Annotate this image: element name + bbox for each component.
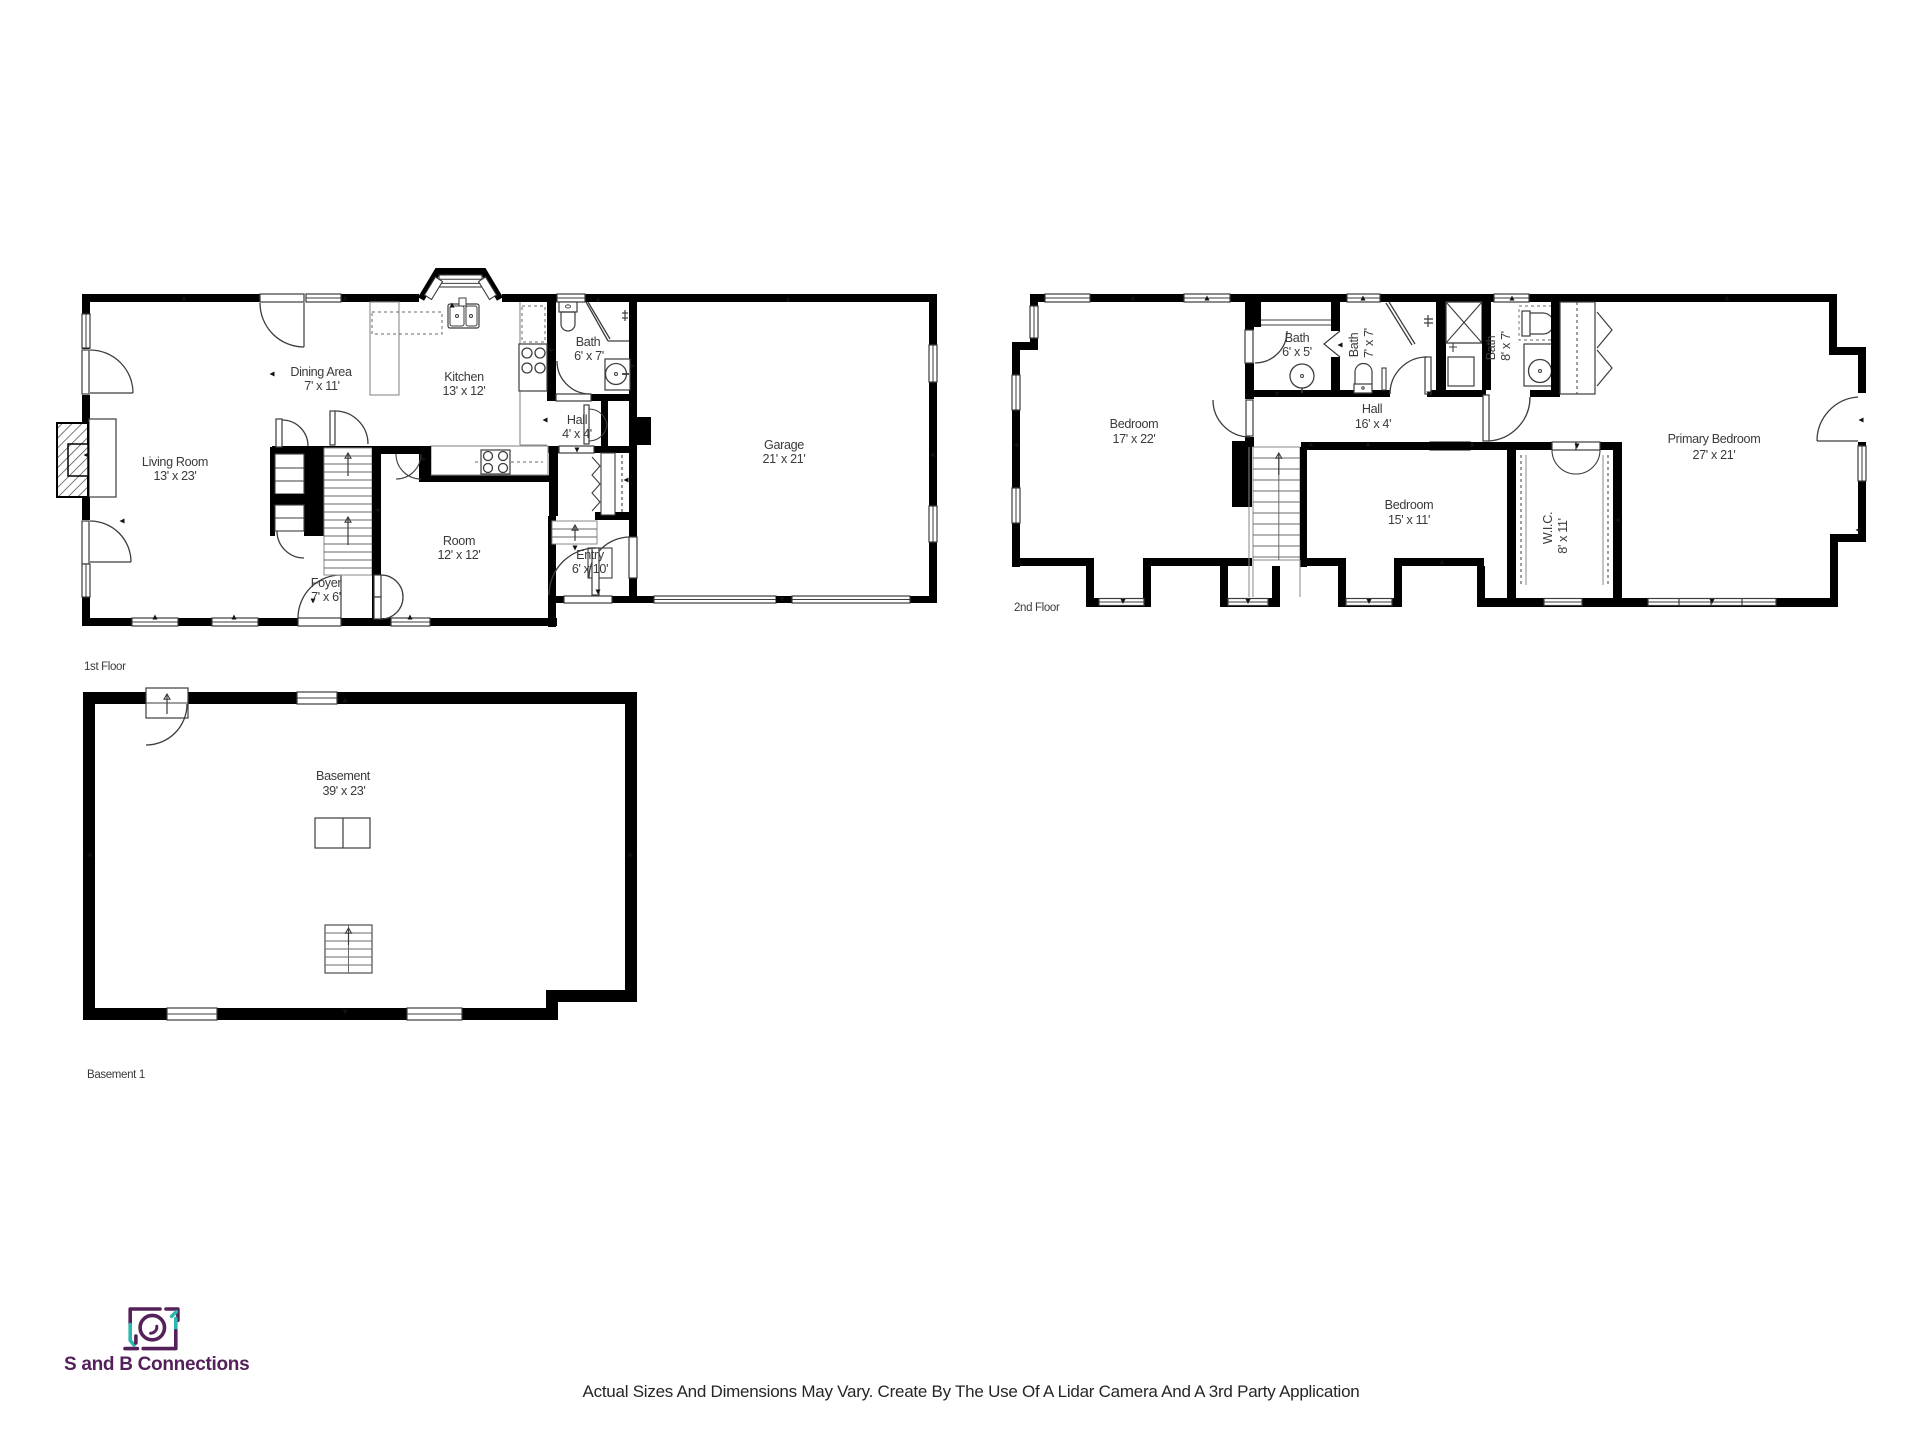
svg-text:2nd Floor: 2nd Floor (1014, 602, 1060, 614)
svg-text:Bath: Bath (1285, 331, 1310, 345)
svg-text:Primary Bedroom: Primary Bedroom (1668, 432, 1761, 446)
svg-text:Room: Room (443, 534, 475, 548)
svg-text:Basement 1: Basement 1 (87, 1069, 145, 1081)
svg-text:Kitchen: Kitchen (444, 370, 484, 384)
svg-text:7' x 11': 7' x 11' (304, 379, 339, 393)
svg-text:16' x 4': 16' x 4' (1355, 417, 1391, 431)
svg-text:Bath: Bath (576, 335, 601, 349)
svg-text:27' x 21': 27' x 21' (1693, 448, 1736, 462)
svg-text:Basement: Basement (316, 769, 371, 783)
svg-text:Hall: Hall (567, 413, 587, 427)
svg-text:Garage: Garage (764, 438, 804, 452)
svg-text:7' x 6': 7' x 6' (311, 590, 341, 604)
svg-text:6' x 10': 6' x 10' (572, 562, 608, 576)
svg-text:8' x 11': 8' x 11' (1556, 518, 1570, 553)
svg-text:13' x 23': 13' x 23' (154, 469, 197, 483)
svg-text:W.I.C.: W.I.C. (1541, 512, 1555, 544)
svg-text:15' x 11': 15' x 11' (1388, 513, 1430, 527)
svg-text:1st Floor: 1st Floor (84, 661, 126, 673)
svg-text:39' x 23': 39' x 23' (323, 784, 366, 798)
svg-text:Dining Area: Dining Area (290, 365, 352, 379)
svg-text:4' x 4': 4' x 4' (562, 427, 592, 441)
svg-text:Actual Sizes And Dimensions Ma: Actual Sizes And Dimensions May Vary. Cr… (583, 1382, 1360, 1401)
svg-text:Bedroom: Bedroom (1385, 498, 1434, 512)
svg-text:8' x 7': 8' x 7' (1499, 331, 1513, 361)
svg-text:Bath: Bath (1484, 335, 1498, 360)
svg-text:7' x 7': 7' x 7' (1362, 328, 1376, 358)
svg-text:Living Room: Living Room (142, 455, 208, 469)
svg-text:12' x 12': 12' x 12' (438, 548, 481, 562)
svg-text:Hall: Hall (1362, 402, 1382, 416)
svg-text:Foyer: Foyer (311, 576, 342, 590)
svg-text:Entry: Entry (576, 548, 605, 562)
svg-text:21' x 21': 21' x 21' (763, 452, 806, 466)
svg-text:Bath: Bath (1347, 332, 1361, 357)
svg-text:13' x 12': 13' x 12' (443, 384, 486, 398)
svg-text:6' x 5': 6' x 5' (1282, 345, 1312, 359)
svg-text:Bedroom: Bedroom (1110, 417, 1159, 431)
svg-text:6' x 7': 6' x 7' (574, 349, 604, 363)
svg-text:S and B Connections: S and B Connections (64, 1354, 249, 1375)
svg-text:17' x 22': 17' x 22' (1113, 432, 1156, 446)
